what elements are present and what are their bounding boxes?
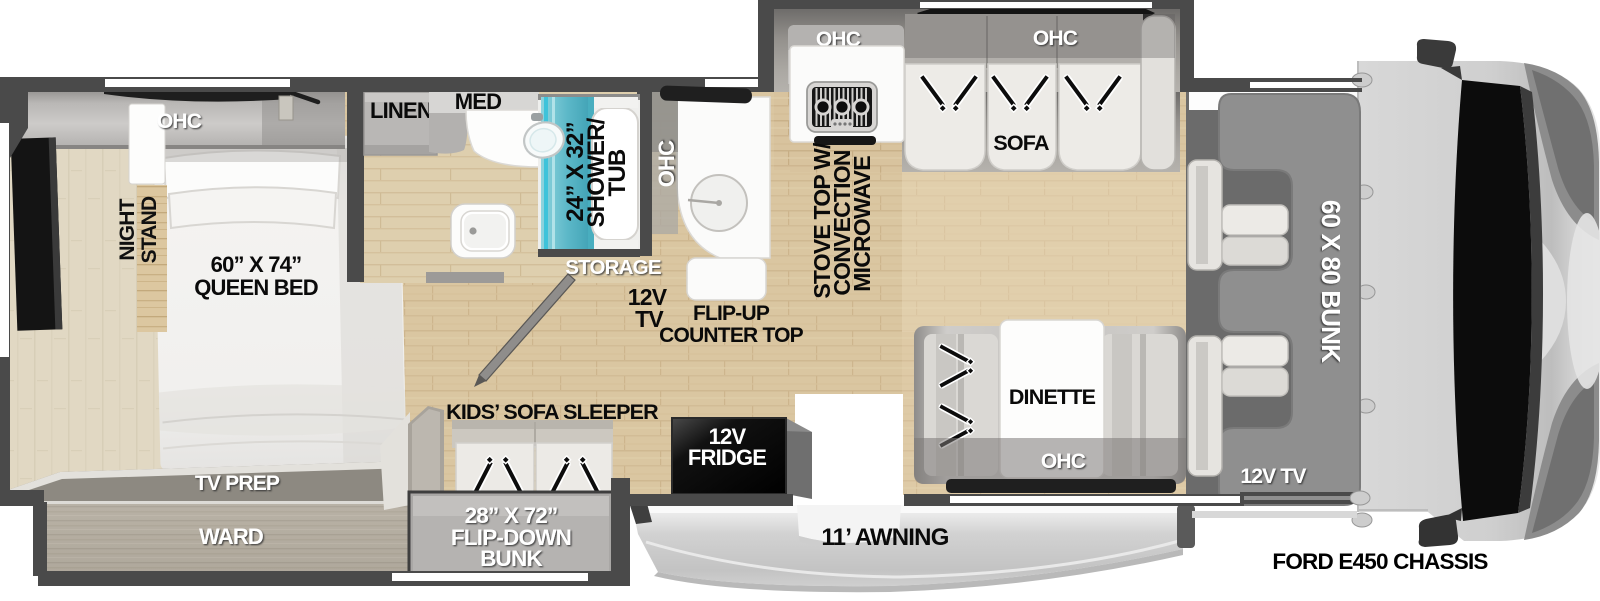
- svg-text:FORD E450 CHASSIS: FORD E450 CHASSIS: [1272, 549, 1488, 574]
- svg-text:OHC: OHC: [1041, 450, 1086, 473]
- svg-text:STORAGE: STORAGE: [565, 256, 661, 279]
- svg-text:MED: MED: [455, 89, 502, 114]
- svg-text:OHC: OHC: [157, 110, 202, 133]
- svg-text:12V TV: 12V TV: [1240, 465, 1306, 488]
- svg-text:SOFA: SOFA: [993, 131, 1049, 155]
- svg-text:COUNTER TOP: COUNTER TOP: [659, 324, 803, 347]
- svg-text:BUNK: BUNK: [480, 546, 543, 571]
- svg-text:TV PREP: TV PREP: [195, 472, 280, 495]
- svg-text:FRIDGE: FRIDGE: [688, 445, 766, 470]
- svg-text:OHC: OHC: [1033, 27, 1078, 50]
- svg-text:TUB: TUB: [604, 149, 631, 196]
- svg-text:60” X 74”: 60” X 74”: [211, 252, 302, 277]
- svg-text:QUEEN BED: QUEEN BED: [194, 275, 318, 300]
- svg-text:11’ AWNING: 11’ AWNING: [821, 524, 948, 551]
- svg-text:OHC: OHC: [654, 140, 679, 187]
- svg-text:DINETTE: DINETTE: [1009, 385, 1096, 409]
- svg-text:LINEN: LINEN: [370, 98, 432, 123]
- svg-text:NIGHT: NIGHT: [116, 198, 139, 260]
- svg-text:60 X 80 BUNK: 60 X 80 BUNK: [1316, 200, 1346, 363]
- svg-text:STAND: STAND: [138, 196, 161, 263]
- svg-text:MICROWAVE: MICROWAVE: [849, 156, 875, 292]
- svg-text:FLIP-UP: FLIP-UP: [693, 302, 770, 325]
- svg-text:KIDS’ SOFA SLEEPER: KIDS’ SOFA SLEEPER: [446, 400, 659, 424]
- svg-text:WARD: WARD: [199, 524, 263, 549]
